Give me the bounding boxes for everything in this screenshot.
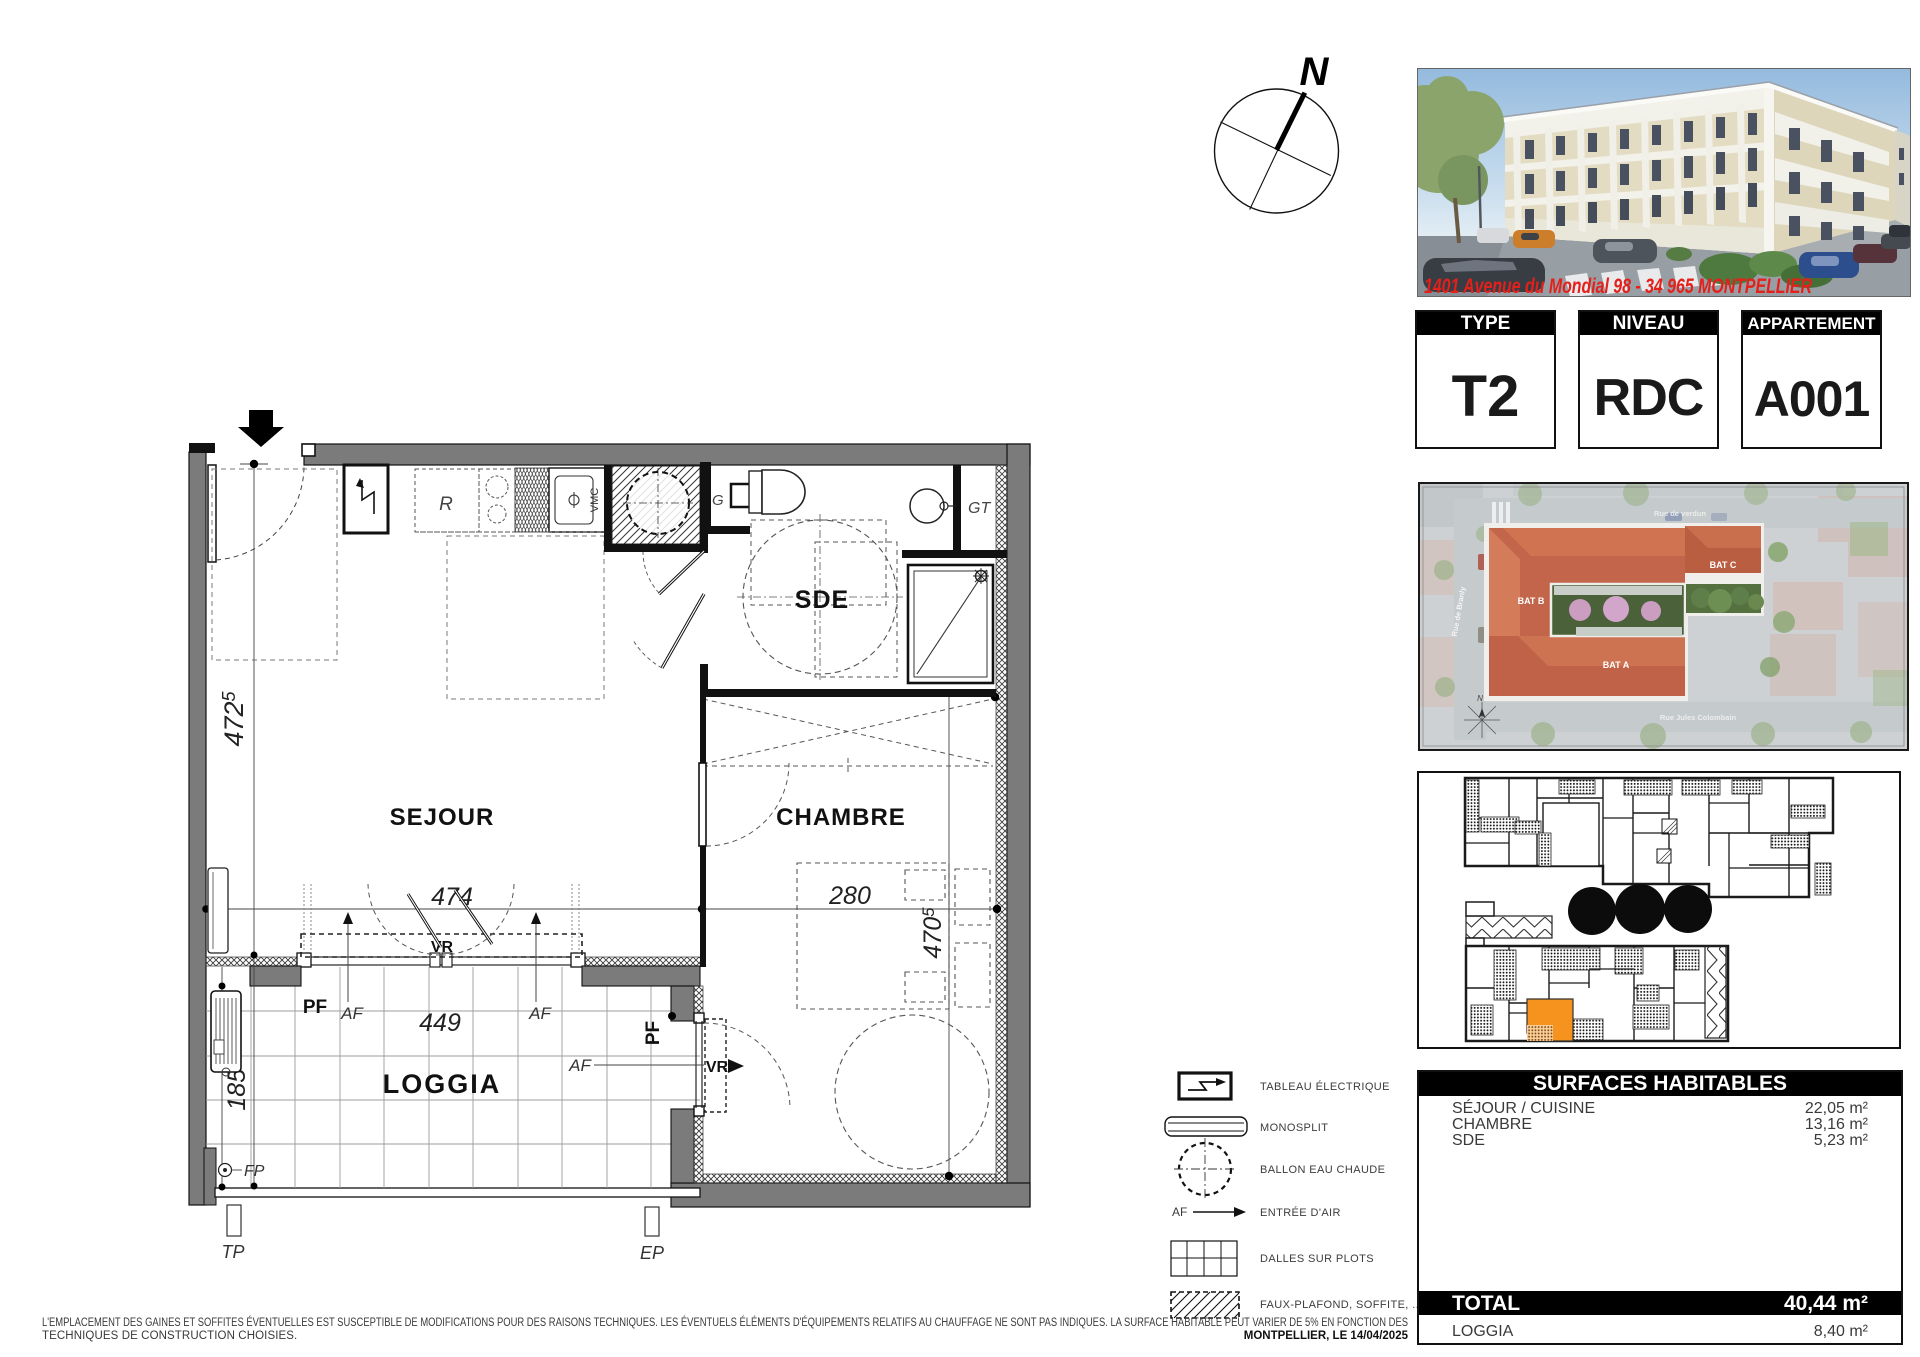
svg-text:AF: AF	[568, 1056, 592, 1075]
svg-text:VMC: VMC	[589, 488, 601, 513]
svg-text:4705: 4705	[919, 907, 947, 959]
svg-text:AF: AF	[340, 1004, 364, 1023]
svg-text:VR: VR	[706, 1059, 729, 1076]
svg-text:VR: VR	[431, 939, 454, 956]
svg-text:LOGGIA: LOGGIA	[383, 1069, 502, 1099]
svg-text:Rue Jules Colombain: Rue Jules Colombain	[1660, 713, 1737, 722]
svg-text:BAT C: BAT C	[1710, 560, 1737, 570]
svg-text:SDE: SDE	[795, 586, 849, 614]
svg-text:GT: GT	[968, 500, 991, 517]
svg-text:TP: TP	[221, 1242, 244, 1262]
svg-text:G: G	[712, 492, 724, 509]
svg-text:EP: EP	[640, 1243, 664, 1263]
svg-text:DALLES SUR PLOTS: DALLES SUR PLOTS	[1260, 1253, 1374, 1265]
svg-text:R: R	[439, 494, 453, 515]
svg-text:TABLEAU ÉLECTRIQUE: TABLEAU ÉLECTRIQUE	[1260, 1080, 1390, 1093]
svg-text:ENTRÉE D'AIR: ENTRÉE D'AIR	[1260, 1206, 1341, 1219]
svg-text:MONOSPLIT: MONOSPLIT	[1260, 1122, 1328, 1134]
svg-text:PF: PF	[303, 997, 327, 1018]
svg-text:MONTPELLIER, LE 14/04/2025: MONTPELLIER, LE 14/04/2025	[1244, 1330, 1409, 1342]
svg-text:AF: AF	[528, 1004, 552, 1023]
svg-text:BAT A: BAT A	[1603, 660, 1630, 670]
svg-text:PF: PF	[643, 1021, 664, 1045]
svg-text:BALLON EAU CHAUDE: BALLON EAU CHAUDE	[1260, 1164, 1385, 1176]
svg-text:4725: 4725	[219, 690, 249, 746]
svg-text:Rue de verdun: Rue de verdun	[1654, 509, 1707, 518]
svg-text:N: N	[1300, 50, 1330, 94]
svg-text:CHAMBRE: CHAMBRE	[776, 804, 906, 831]
svg-text:FP: FP	[244, 1163, 265, 1180]
svg-text:BAT B: BAT B	[1518, 596, 1545, 606]
svg-text:SEJOUR: SEJOUR	[390, 804, 495, 831]
svg-text:280: 280	[828, 882, 871, 910]
svg-text:L'EMPLACEMENT DES GAINES ET SO: L'EMPLACEMENT DES GAINES ET SOFFITES ÉVE…	[42, 1316, 1408, 1329]
svg-text:TECHNIQUES DE CONSTRUCTION CHO: TECHNIQUES DE CONSTRUCTION CHOISIES.	[42, 1330, 297, 1342]
svg-text:1401 Avenue du Mondial 98 - 34: 1401 Avenue du Mondial 98 - 34 965 MONTP…	[1424, 275, 1813, 297]
svg-text:AF: AF	[1172, 1205, 1187, 1219]
svg-text:449: 449	[419, 1009, 461, 1037]
svg-text:N: N	[1477, 694, 1483, 703]
